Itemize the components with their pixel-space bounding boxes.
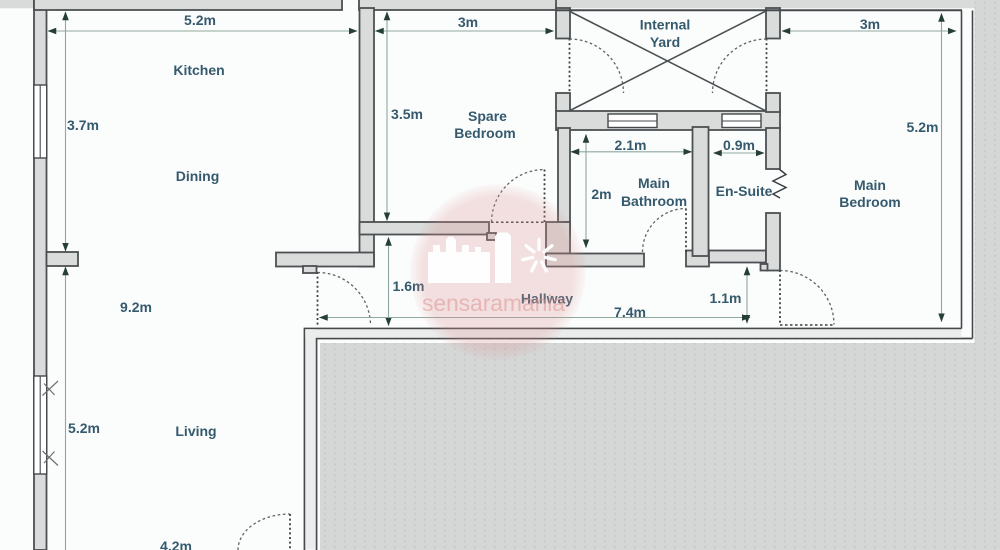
- svg-text:En-Suite: En-Suite: [716, 183, 773, 199]
- svg-text:Spare: Spare: [468, 108, 507, 124]
- svg-text:sensaramania: sensaramania: [422, 290, 566, 316]
- svg-text:Dining: Dining: [176, 168, 220, 184]
- svg-text:3.7m: 3.7m: [67, 117, 99, 133]
- svg-text:5.2m: 5.2m: [907, 119, 939, 135]
- svg-text:Bathroom: Bathroom: [621, 193, 687, 209]
- svg-text:0.9m: 0.9m: [723, 137, 755, 153]
- svg-text:4.2m: 4.2m: [160, 538, 192, 550]
- svg-text:7.4m: 7.4m: [614, 304, 646, 320]
- svg-text:Bedroom: Bedroom: [454, 125, 515, 141]
- svg-text:Kitchen: Kitchen: [173, 62, 224, 78]
- svg-text:1.1m: 1.1m: [710, 290, 742, 306]
- svg-text:Main: Main: [854, 177, 886, 193]
- svg-text:9.2m: 9.2m: [120, 299, 152, 315]
- svg-text:Yard: Yard: [650, 34, 680, 50]
- svg-text:Living: Living: [175, 423, 216, 439]
- svg-text:Main: Main: [638, 175, 670, 191]
- svg-text:5.2m: 5.2m: [184, 12, 216, 28]
- svg-text:3.5m: 3.5m: [391, 106, 423, 122]
- svg-text:5.2m: 5.2m: [68, 420, 100, 436]
- svg-text:3m: 3m: [458, 14, 478, 30]
- svg-text:Bedroom: Bedroom: [839, 194, 900, 210]
- svg-text:2.1m: 2.1m: [615, 137, 647, 153]
- svg-text:3m: 3m: [860, 16, 880, 32]
- svg-text:Internal: Internal: [640, 17, 691, 33]
- svg-text:2m: 2m: [591, 186, 611, 202]
